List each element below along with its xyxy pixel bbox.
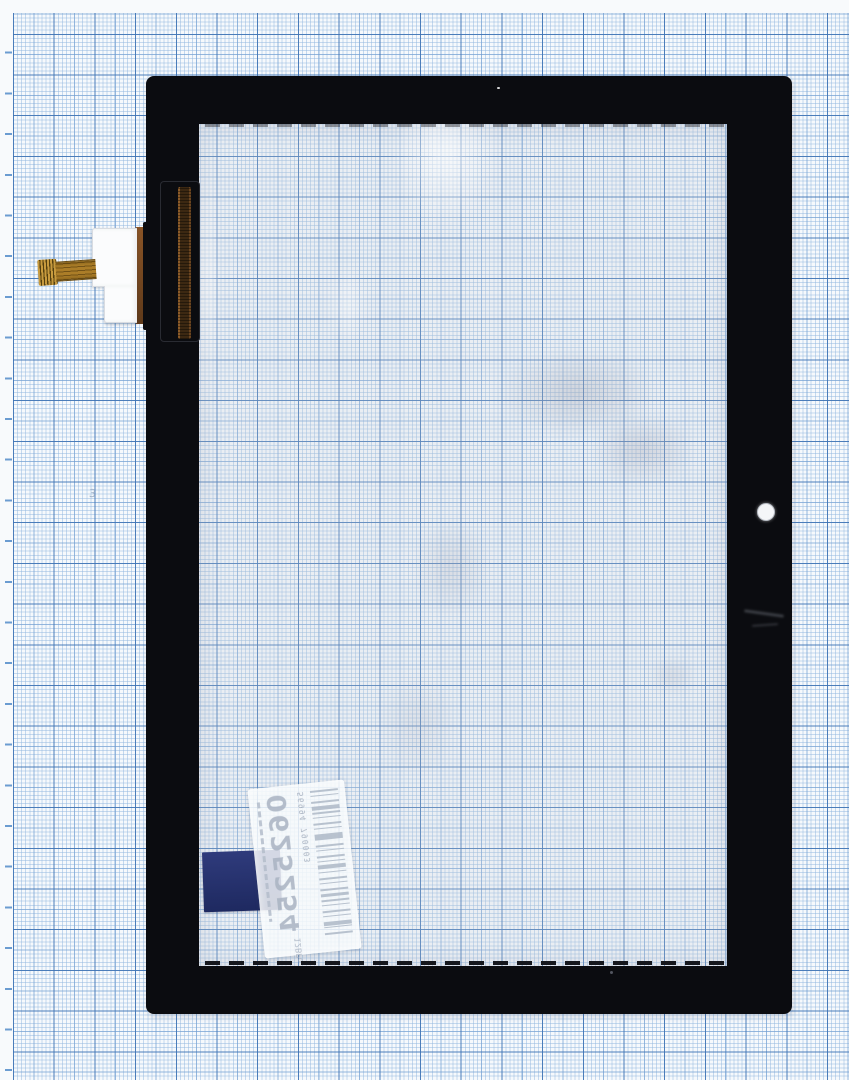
digitizer-bezel-frame <box>146 76 792 1014</box>
handwritten-mark: 3 <box>89 487 97 500</box>
paper-margin-left <box>0 0 13 1080</box>
bezel-side-tab <box>143 222 152 330</box>
dust-speck <box>497 87 500 89</box>
flex-connector-body-lower <box>104 286 137 323</box>
flex-connector-body <box>92 228 137 287</box>
scene-root: 3 062525412BPo 56994 790003 <box>0 0 849 1080</box>
frame-dot <box>610 971 613 974</box>
copper-contact-strip <box>178 187 191 339</box>
paper-margin-top <box>0 0 849 13</box>
flex-cable <box>37 256 97 286</box>
paper-edge-tick-marks <box>5 0 12 1080</box>
camera-hole <box>757 503 775 521</box>
cable-ribbon <box>55 259 96 282</box>
